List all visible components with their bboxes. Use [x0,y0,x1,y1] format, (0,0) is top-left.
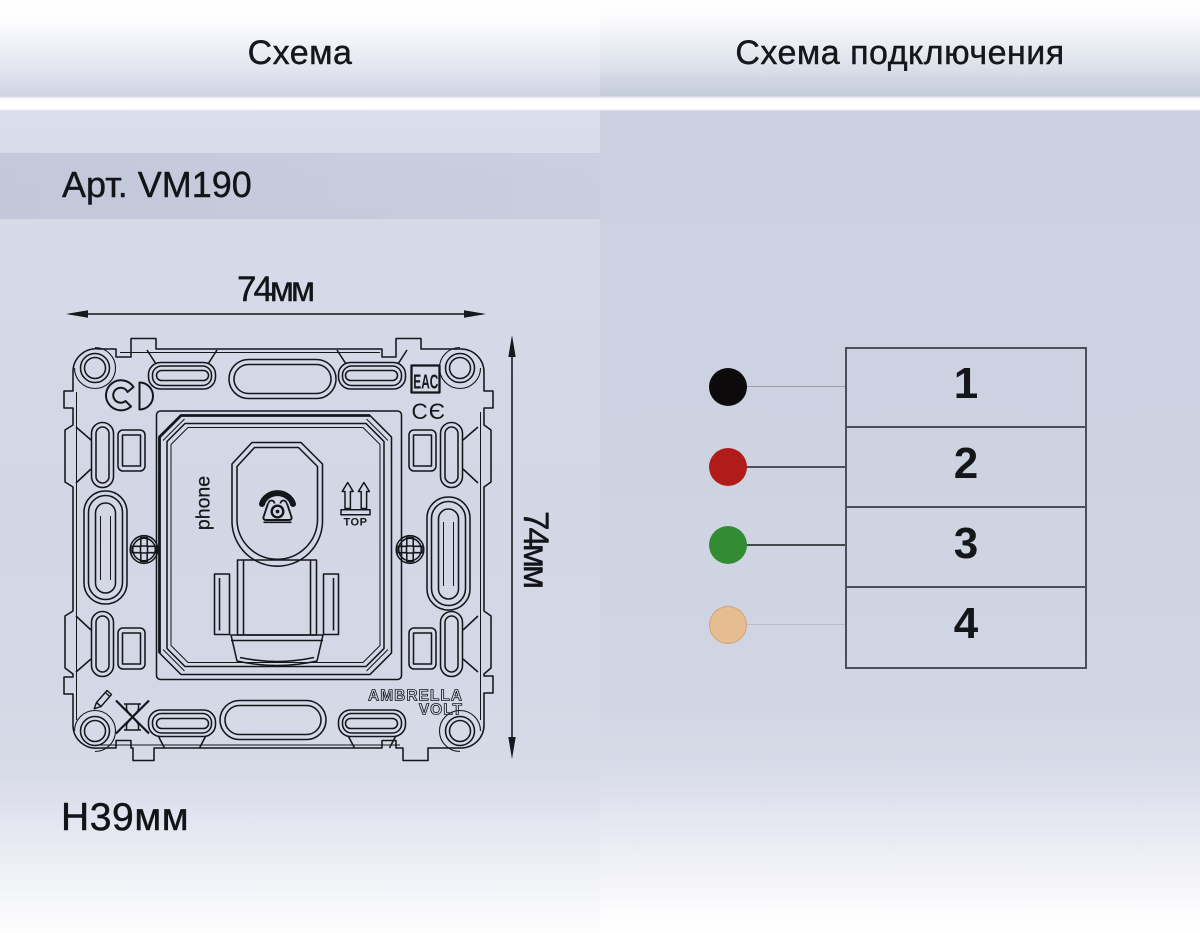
svg-text:phone: phone [193,476,215,530]
svg-text:СЄ: СЄ [412,399,446,424]
svg-text:EAC: EAC [413,372,438,394]
svg-text:74мм: 74мм [237,270,315,309]
svg-text:TOP: TOP [344,517,368,529]
svg-text:74мм: 74мм [516,511,555,589]
svg-text:VOLT: VOLT [419,702,463,719]
